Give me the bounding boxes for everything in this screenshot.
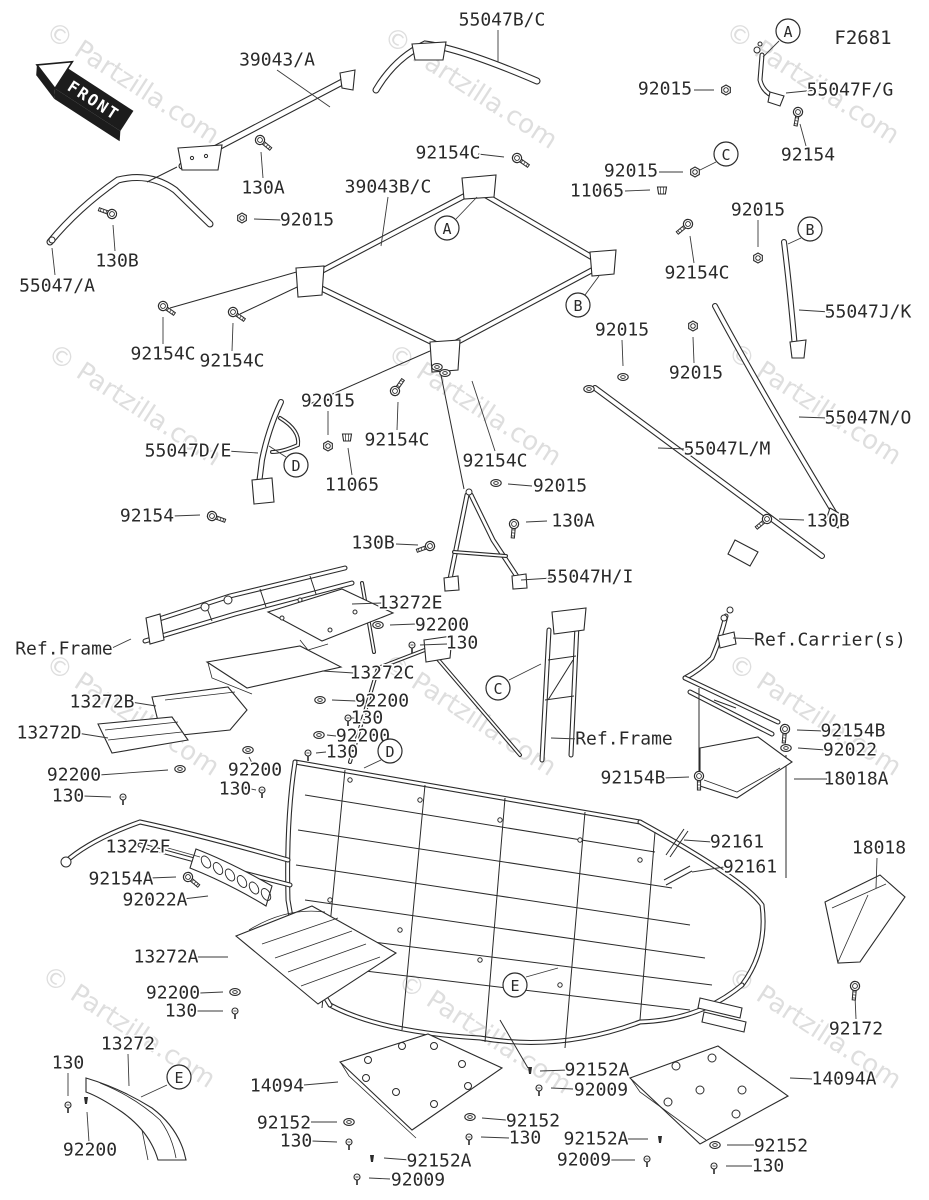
leader-line <box>348 448 352 475</box>
part-plate <box>552 608 586 634</box>
frame-tube <box>50 178 210 242</box>
hole <box>365 1057 372 1064</box>
trim-clip-icon <box>84 1097 88 1104</box>
part-label-55047a: 55047/A <box>19 276 95 297</box>
hole <box>418 798 422 802</box>
part-label-130: 130 <box>446 633 479 654</box>
frame-line <box>670 831 688 857</box>
part-plate <box>207 646 341 688</box>
part-label-13272c: 13272C <box>349 663 414 684</box>
hole <box>558 983 562 987</box>
screw-icon <box>346 1139 352 1150</box>
leader-line <box>227 451 258 453</box>
svg-text:A: A <box>442 220 451 238</box>
part-plate <box>236 906 396 1004</box>
washer-icon <box>584 386 594 393</box>
hole <box>49 237 55 243</box>
leader-line <box>316 752 326 753</box>
leader-line <box>150 877 176 878</box>
part-label-18018: 18018 <box>852 838 906 859</box>
part-label-130b: 130B <box>351 533 394 554</box>
callout-D: D <box>284 453 308 477</box>
washer-icon <box>618 374 628 381</box>
screw-icon <box>711 1163 717 1174</box>
hole <box>431 1101 438 1108</box>
bolt-icon <box>415 540 436 555</box>
screw-icon <box>232 1008 238 1019</box>
washer-icon <box>175 766 185 773</box>
part-plate <box>296 266 324 297</box>
svg-text:B: B <box>573 297 582 315</box>
callout-A: A <box>435 216 459 240</box>
part-label-13272a: 13272A <box>133 947 198 968</box>
hole <box>298 598 302 602</box>
leader-line <box>390 624 416 625</box>
leader-line <box>798 748 826 750</box>
leader-line <box>251 789 256 790</box>
hole <box>224 596 232 604</box>
part-plate <box>728 540 758 566</box>
frame-tube-fill <box>50 178 210 242</box>
leader-line <box>625 190 650 191</box>
washer-icon <box>344 1119 354 1126</box>
watermark-text: © Partzilla.com <box>378 21 563 155</box>
part-label-13272: 13272 <box>101 1034 155 1055</box>
part-plate <box>590 250 616 276</box>
part-label-130b: 130B <box>95 251 138 272</box>
trim-clip-icon <box>370 1155 374 1162</box>
callout-E: E <box>167 1065 191 1089</box>
part-label-55047no: 55047N/O <box>825 408 912 429</box>
leader-line <box>690 236 694 263</box>
washer-icon <box>491 480 501 487</box>
hole <box>672 1062 680 1070</box>
washer-icon <box>315 697 325 704</box>
part-label-92200: 92200 <box>228 760 282 781</box>
frame-line <box>485 798 505 1042</box>
frame-line <box>548 660 573 700</box>
leader-line <box>482 1118 506 1120</box>
nut-icon <box>691 167 700 177</box>
washer-icon <box>465 1114 475 1121</box>
part-label-14094a: 14094A <box>811 1069 876 1090</box>
part-label-130a: 130A <box>241 178 285 199</box>
part-plate <box>768 92 784 106</box>
frame-line <box>170 271 300 308</box>
frame-line <box>666 829 684 855</box>
hole <box>328 898 332 902</box>
svg-text:E: E <box>510 977 519 995</box>
part-label-92172: 92172 <box>829 1019 883 1040</box>
part-label-55047lm: 55047L/M <box>684 439 771 460</box>
washer-icon <box>710 1142 720 1149</box>
screw-icon <box>120 794 126 805</box>
hole <box>431 1043 438 1050</box>
leader-line <box>232 323 233 351</box>
part-plate <box>825 875 905 963</box>
part-label-55047fg: 55047F/G <box>807 80 894 101</box>
frame-tube-fill <box>480 192 600 262</box>
part-label-refcarriers: Ref.Carrier(s) <box>754 630 906 651</box>
part-plate <box>512 574 527 589</box>
leader-line <box>800 124 806 146</box>
callout-E: E <box>503 973 527 997</box>
part-label-92154b: 92154B <box>600 768 665 789</box>
part-plate <box>700 737 792 798</box>
svg-text:D: D <box>291 457 300 475</box>
hole <box>721 615 727 621</box>
leader-line <box>693 337 694 363</box>
screw-icon <box>305 750 311 761</box>
part-label-92154c: 92154C <box>364 430 429 451</box>
part-label-130: 130 <box>326 742 359 763</box>
part-label-130: 130 <box>219 779 252 800</box>
washer-icon <box>781 745 791 752</box>
hole <box>478 958 482 962</box>
part-label-130b: 130B <box>806 511 849 532</box>
part-label-130: 130 <box>280 1131 313 1152</box>
leader-line <box>788 238 801 244</box>
leader-line <box>481 1137 509 1138</box>
frame-line <box>305 795 655 852</box>
hole <box>328 628 332 632</box>
leader-line <box>327 735 336 736</box>
leader-line <box>779 519 804 520</box>
hole <box>353 610 357 614</box>
leader-line <box>397 402 398 430</box>
frame-tube-fill <box>595 388 822 556</box>
hole <box>466 489 472 495</box>
part-label-130a: 130A <box>551 511 595 532</box>
leader-line <box>83 796 111 797</box>
hole <box>664 1098 672 1106</box>
hole <box>732 1110 740 1118</box>
parts-diagram-canvas: © Partzilla.com© Partzilla.com© Partzill… <box>0 0 929 1200</box>
bolt-icon <box>674 218 694 237</box>
washer-icon <box>432 364 442 371</box>
hole <box>738 1086 746 1094</box>
frame-line <box>666 871 692 885</box>
part-label-92022: 92022 <box>823 740 877 761</box>
washer-icon <box>243 747 253 754</box>
frame-tube-fill <box>330 985 742 1042</box>
leader-line <box>684 840 712 842</box>
part-label-92022a: 92022A <box>122 890 187 911</box>
hole <box>393 1089 400 1096</box>
callout-C: C <box>486 676 510 700</box>
part-label-55047jk: 55047J/K <box>825 302 912 323</box>
part-label-130: 130 <box>752 1156 785 1177</box>
leader-line <box>312 1141 337 1142</box>
part-label-92015: 92015 <box>604 161 658 182</box>
leader-line <box>663 777 689 778</box>
frame-line <box>565 812 585 1048</box>
leader-line <box>526 968 558 977</box>
bolt-icon <box>227 306 248 324</box>
part-plate <box>444 576 459 591</box>
leader-line <box>113 225 115 251</box>
callout-B: B <box>566 293 590 317</box>
part-label-92154c: 92154C <box>130 344 195 365</box>
part-label-92015: 92015 <box>669 363 723 384</box>
frame-line <box>548 656 576 660</box>
hole <box>280 616 284 620</box>
part-label-92154c: 92154C <box>462 451 527 472</box>
hole <box>61 857 71 867</box>
frame-tube <box>330 985 742 1042</box>
part-label-92152: 92152 <box>754 1136 808 1157</box>
part-label-55047bc: 55047B/C <box>459 10 546 31</box>
leader-line <box>332 700 356 701</box>
leader-line <box>304 1082 338 1085</box>
screw-icon <box>65 1102 71 1113</box>
part-label-11065: 11065 <box>325 475 379 496</box>
part-label-92152a: 92152A <box>406 1151 471 1172</box>
screw-icon <box>644 1156 650 1167</box>
hole <box>465 1083 472 1090</box>
nut-icon <box>324 441 333 451</box>
frame-tube-fill <box>449 495 467 584</box>
screw-icon <box>354 1174 360 1185</box>
washer-icon <box>440 370 450 377</box>
callout-C: C <box>714 142 738 166</box>
part-plate <box>462 175 496 199</box>
part-label-92154: 92154 <box>120 506 174 527</box>
part-label-92154b: 92154B <box>820 721 885 742</box>
leader-line <box>396 544 418 545</box>
leader-line <box>52 248 55 275</box>
bolt-icon <box>157 300 178 318</box>
bolt-icon <box>254 134 274 153</box>
screw-icon <box>536 1085 542 1096</box>
washer-icon <box>230 989 240 996</box>
frame-tube-fill <box>784 242 795 348</box>
part-plate <box>340 70 355 90</box>
screw-icon <box>466 1134 472 1145</box>
cap-icon <box>343 434 352 441</box>
part-label-55047de: 55047D/E <box>145 441 232 462</box>
part-plate <box>412 42 446 60</box>
part-label-39043a: 39043/A <box>239 50 315 71</box>
leader-line <box>790 1078 812 1079</box>
part-label-92161: 92161 <box>710 832 764 853</box>
part-label-130: 130 <box>52 1053 85 1074</box>
hole <box>459 1061 466 1068</box>
bolt-icon <box>389 377 407 398</box>
part-label-13272b: 13272B <box>69 692 134 713</box>
leader-line <box>369 1178 390 1179</box>
part-plate <box>178 145 222 170</box>
hole <box>727 607 733 613</box>
hole <box>638 858 642 862</box>
bolt-icon <box>849 981 860 1000</box>
hole <box>348 778 352 782</box>
bolt-icon <box>508 519 519 538</box>
svg-text:A: A <box>783 23 792 41</box>
leader-line <box>200 992 223 993</box>
leader-line <box>173 515 200 516</box>
leader-line <box>87 1112 89 1142</box>
frame-line <box>664 866 690 880</box>
bolt-icon <box>779 724 790 743</box>
callout-B: B <box>798 217 822 241</box>
part-label-refframe: Ref.Frame <box>15 639 113 660</box>
hole <box>696 1086 704 1094</box>
part-label-92154a: 92154A <box>88 869 153 890</box>
bolt-icon <box>182 871 202 890</box>
part-label-92152a: 92152A <box>563 1129 628 1150</box>
hole <box>708 1054 716 1062</box>
part-label-92015: 92015 <box>731 200 785 221</box>
part-label-92015: 92015 <box>595 320 649 341</box>
leader-line <box>110 639 131 649</box>
part-label-92015: 92015 <box>533 476 587 497</box>
leader-line <box>128 1054 129 1086</box>
nut-icon <box>722 85 731 95</box>
hole <box>498 818 502 822</box>
part-label-13272e: 13272E <box>377 593 442 614</box>
nut-icon <box>689 321 698 331</box>
hole <box>754 47 760 53</box>
part-label-92009: 92009 <box>574 1080 628 1101</box>
leader-line <box>254 219 281 220</box>
part-label-13272d: 13272D <box>16 723 81 744</box>
svg-text:E: E <box>174 1069 183 1087</box>
part-label-11065: 11065 <box>570 181 624 202</box>
part-label-13272f: 13272F <box>105 837 170 858</box>
washer-icon <box>314 732 324 739</box>
trim-clip-icon <box>658 1136 662 1143</box>
part-label-92015: 92015 <box>301 391 355 412</box>
part-label-92154c: 92154C <box>199 351 264 372</box>
frame-tube-fill <box>308 282 440 346</box>
part-label-14094: 14094 <box>250 1076 304 1097</box>
figure-code: F2681 <box>834 27 891 49</box>
part-label-92015: 92015 <box>638 79 692 100</box>
cap-icon <box>658 187 667 194</box>
hole <box>363 1075 370 1082</box>
frame-line <box>298 830 672 888</box>
leader-line <box>478 154 504 157</box>
part-label-92200: 92200 <box>63 1140 117 1161</box>
nut-icon <box>238 213 247 223</box>
leader-line <box>141 1085 167 1097</box>
bolt-icon <box>511 152 532 170</box>
leader-line <box>364 760 381 768</box>
washer-icon <box>373 622 383 629</box>
part-label-92154: 92154 <box>781 145 835 166</box>
part-label-130: 130 <box>165 1001 198 1022</box>
leader-line <box>99 770 168 775</box>
svg-text:C: C <box>493 680 502 698</box>
hole <box>578 838 582 842</box>
leader-line <box>261 152 263 178</box>
part-label-92154c: 92154C <box>415 143 480 164</box>
part-label-92161: 92161 <box>723 857 777 878</box>
hole <box>758 42 762 46</box>
leader-line <box>585 276 599 295</box>
part-plate <box>790 340 806 358</box>
part-plate <box>340 1034 502 1130</box>
part-label-92009: 92009 <box>391 1170 445 1191</box>
part-label-130: 130 <box>52 786 85 807</box>
part-label-55047hi: 55047H/I <box>547 567 634 588</box>
part-label-refframe: Ref.Frame <box>575 729 673 750</box>
part-label-92200: 92200 <box>47 765 101 786</box>
part-label-18018a: 18018A <box>823 769 888 790</box>
leader-line <box>509 664 541 680</box>
bolt-icon <box>206 510 227 525</box>
leader-line <box>526 521 547 522</box>
leader-line <box>622 340 623 366</box>
leader-line <box>508 484 532 486</box>
callout-A: A <box>776 19 800 43</box>
part-label-39043bc: 39043B/C <box>345 177 432 198</box>
part-label-92009: 92009 <box>557 1150 611 1171</box>
bolt-icon <box>791 107 803 127</box>
screw-icon <box>409 642 415 653</box>
part-label-92154c: 92154C <box>664 263 729 284</box>
screw-icon <box>259 787 265 798</box>
hole <box>190 156 193 159</box>
parts-diagram-page: © Partzilla.com© Partzilla.com© Partzill… <box>0 0 929 1200</box>
svg-text:D: D <box>385 743 394 761</box>
frame-line <box>296 865 690 925</box>
svg-text:B: B <box>805 221 814 239</box>
hole <box>204 154 207 157</box>
hole <box>399 1043 406 1050</box>
hole <box>201 603 209 611</box>
leader-line <box>700 162 716 170</box>
part-label-92015: 92015 <box>280 210 334 231</box>
callout-D: D <box>378 739 402 763</box>
svg-text:C: C <box>721 146 730 164</box>
part-label-92152a: 92152A <box>564 1060 629 1081</box>
bolt-icon <box>97 205 118 220</box>
bolt-icon <box>753 513 773 532</box>
frame-tube-fill <box>295 762 640 822</box>
part-plate <box>252 478 274 504</box>
nut-icon <box>754 253 763 263</box>
part-plate <box>268 589 393 641</box>
hole <box>398 928 402 932</box>
part-label-130: 130 <box>509 1128 542 1149</box>
